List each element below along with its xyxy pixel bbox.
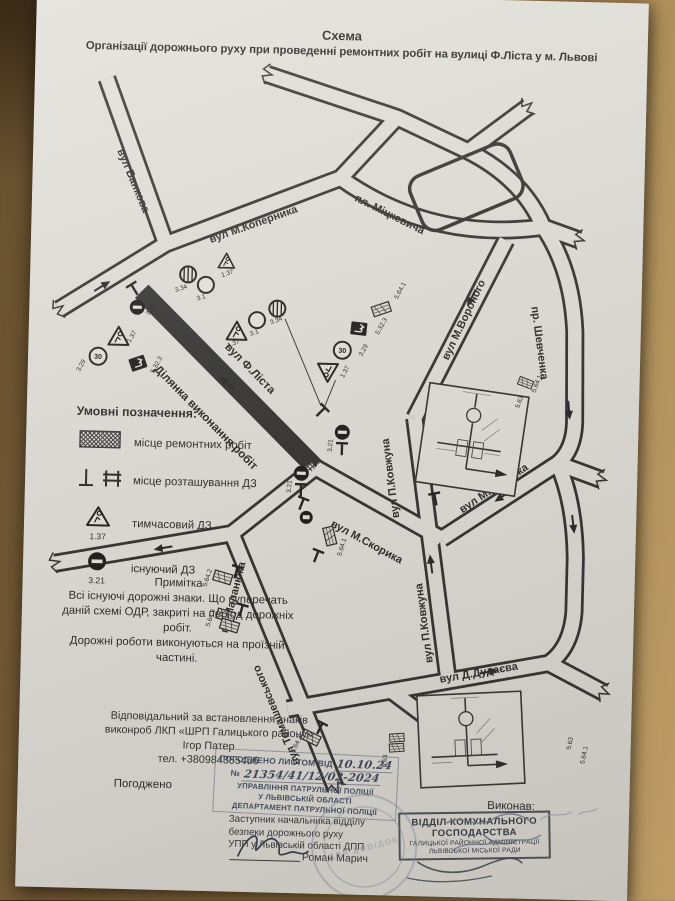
roadworks-sign-icon: 1.37: [74, 504, 123, 542]
agreed-label: Погоджено: [114, 778, 173, 791]
hatched-area-icon: [76, 428, 125, 456]
svg-text:3.1: 3.1: [249, 328, 260, 338]
svg-text:3.21: 3.21: [327, 439, 335, 452]
svg-text:3.29: 3.29: [75, 358, 87, 373]
detour-scheme-inset-2: [417, 691, 525, 788]
svg-text:5.63: 5.63: [566, 736, 575, 750]
legend-item-stands: місце розташування ДЗ: [75, 464, 316, 501]
svg-text:5.64.1: 5.64.1: [579, 745, 590, 764]
inset-1-sign-codes: 5.63 5.64.1: [514, 373, 544, 409]
svg-text:1.37: 1.37: [220, 268, 235, 279]
sign-cluster-junction-a: 3.34 3.1 1.37: [174, 252, 236, 303]
legend-item-temporary: 1.37 тимчасовий ДЗ: [74, 504, 315, 547]
signer-name: Роман Марич: [302, 851, 368, 865]
signer-position: Заступник начальника відділу безпеки дор…: [228, 814, 399, 856]
sign-stand-icons: [75, 464, 124, 496]
sign-cluster-east-workzone: 5.64.1 5.32.3 3.29 1.37: [317, 279, 408, 408]
communal-department-stamp: ВІДДІЛ КОМУНАЛЬНОГО ГОСПОДАРСТВА ГАЛИЦЬК…: [398, 811, 551, 861]
photo-of-traffic-scheme-document: { "colors":{"paper":"#e1dfda","ink":"#2d…: [0, 0, 675, 900]
paper-document: Схема Організації дорожнього руху при пр…: [15, 0, 649, 901]
note-body-2: Дорожні роботи виконуються на проїзній ч…: [57, 634, 298, 670]
note-body-1: Всі існуючі дорожні знаки. Що суперечать…: [57, 588, 298, 639]
note-block: Примітка Всі існуючі дорожні знаки. Що с…: [57, 573, 299, 669]
svg-text:5.64.1: 5.64.1: [336, 537, 348, 557]
detour-scheme-inset-1: [415, 383, 529, 497]
svg-text:1.37: 1.37: [339, 364, 351, 379]
svg-text:3.34: 3.34: [174, 283, 189, 294]
svg-text:5.32.3: 5.32.3: [374, 316, 389, 336]
svg-text:3.1: 3.1: [196, 293, 207, 303]
svg-text:3.34: 3.34: [269, 315, 284, 326]
street-label-voronoho: вул М.Вороного: [440, 278, 488, 362]
legend-item-workzone: місце ремонтних робіт: [76, 428, 317, 461]
street-label-shevchenka: пр. Шевченка: [528, 306, 550, 382]
legend: Умовні позначення: місце ремонтних робіт: [72, 404, 317, 600]
svg-text:3.29: 3.29: [358, 343, 370, 358]
svg-text:5.64.1: 5.64.1: [393, 281, 408, 301]
svg-text:1.37: 1.37: [126, 329, 138, 344]
svg-text:5.64.1: 5.64.1: [531, 374, 544, 394]
police-approval-stamp: ПОГОДЖЕНО ЛИСТОМ ВІД 10.10.24 № 21354/41…: [212, 748, 399, 821]
